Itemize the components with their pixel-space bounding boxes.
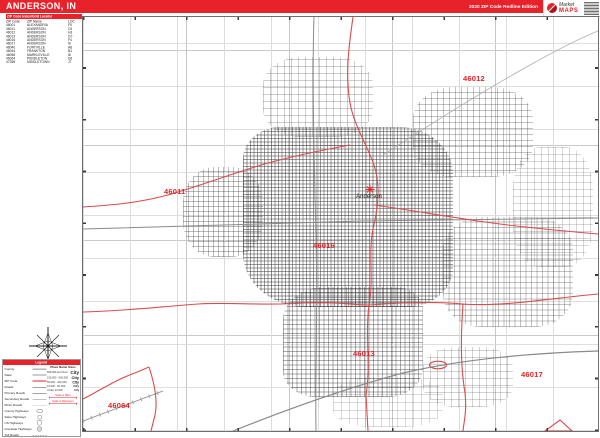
scale-bar-line <box>49 397 77 398</box>
legend-sample-line-gray <box>33 399 47 400</box>
legend-items: CountyStateZIP CodeRoadsPrimary RoadsSec… <box>3 365 47 437</box>
loc-cell: J7 <box>68 61 80 65</box>
legend-sample-line-red <box>33 381 47 382</box>
grid-ticks-left <box>83 17 86 431</box>
place-tier: 10,000 - 50,000City <box>47 385 79 388</box>
place-tier-range: 50,000 - 100,000 <box>47 381 67 384</box>
legend-sample-line-dark <box>33 387 47 388</box>
legend-item-label: Toll Roads <box>5 433 33 437</box>
legend-tiers: 500,000 and OverCity100,000 - 500,000Cit… <box>47 370 79 392</box>
legend-item-label: Primary Roads <box>5 391 33 395</box>
urban-area <box>513 147 593 267</box>
zip-index-table: ZIP Code Index/Grid Locator ZIP Code ZIP… <box>6 14 82 110</box>
logo-text: Market MAPS <box>559 3 578 14</box>
globe-icon <box>547 3 557 13</box>
urban-area <box>333 377 443 427</box>
legend-item-label: State Highways <box>5 415 33 419</box>
legend-item-label: US Highways <box>5 421 33 425</box>
logo-name-bottom: MAPS <box>559 8 578 14</box>
urban-area <box>263 57 373 137</box>
legend-sample-box <box>32 381 47 382</box>
legend-sample-line-thick <box>33 368 47 370</box>
zip-code-label: 46013 <box>353 349 375 358</box>
legend-header-text: Legend <box>36 361 48 365</box>
page-title: ANDERSON, IN <box>6 0 76 13</box>
name-cell: MIDDLETOWN <box>27 61 68 65</box>
place-tier-sample: City <box>74 389 79 392</box>
legend-sample-line-med <box>33 375 47 376</box>
legend-body: CountyStateZIP CodeRoadsPrimary RoadsSec… <box>3 365 81 437</box>
legend-sample-badge-oval <box>36 409 43 413</box>
edition-label: 2020 ZIP Code Redline Edition <box>469 4 538 9</box>
map-canvas: Anderson 460124601146016460134601746064 <box>82 16 599 432</box>
legend-scales: Scale in MilesScale in Kilometers <box>47 394 79 404</box>
legend-item: Toll Roads <box>5 432 48 437</box>
zip-table-row: 47356MIDDLETOWNJ7 <box>6 61 82 65</box>
legend-item-label: Roads <box>5 385 33 389</box>
legend-sample-box <box>32 415 47 420</box>
logo-fineprint-box <box>584 2 599 15</box>
place-tier: 50,000 - 100,000City <box>47 381 79 385</box>
grid-ticks-right <box>595 17 598 431</box>
legend-item-label: Interstate Highways <box>5 427 33 431</box>
publisher-logo: Market MAPS <box>543 0 600 17</box>
scale-bar: Scale in Miles <box>47 394 79 398</box>
place-tier-sample: City <box>73 385 79 388</box>
legend-sample-badge-circle <box>37 415 42 420</box>
legend-sample-line-toll <box>33 435 47 436</box>
place-tier-range: 100,000 - 500,000 <box>47 376 68 379</box>
legend-sample-box <box>32 405 47 406</box>
legend-item-label: ZIP Code <box>5 379 33 383</box>
legend-item-label: State <box>5 373 33 377</box>
legend-sample-box <box>32 427 47 432</box>
legend-item-label: Minor Roads <box>5 403 33 407</box>
legend-sample-badge-interstate <box>37 427 42 432</box>
urban-area <box>413 87 533 177</box>
zip-code-label: 46012 <box>463 74 485 83</box>
zip-code-label: 46011 <box>164 187 185 196</box>
city-label: Anderson <box>344 194 394 200</box>
place-tier: 500,000 and OverCity <box>47 370 79 375</box>
zip-code-label: 46016 <box>313 241 335 250</box>
legend-sample-line-light <box>33 405 47 406</box>
legend-right-column: Place Name Sizes 500,000 and OverCity100… <box>47 365 80 437</box>
zip-table-header-text: ZIP Code Index/Grid Locator <box>6 15 52 19</box>
place-tier-range: 500,000 and Over <box>47 371 68 374</box>
urban-area <box>183 167 263 257</box>
legend-item-label: Secondary Roads <box>5 397 33 401</box>
scale-bar-line <box>49 403 77 404</box>
place-tier-range: 10,000 - 50,000 <box>47 385 65 388</box>
place-tier-sample: City <box>70 370 79 375</box>
grid-ticks-top <box>83 17 598 20</box>
title-bar: ANDERSON, IN 2020 ZIP Code Redline Editi… <box>0 0 600 13</box>
zip-cell: 47356 <box>6 61 27 65</box>
legend-sample-line-dark <box>33 393 47 394</box>
edition-wrap: 2020 ZIP Code Redline Edition <box>423 0 538 13</box>
legend-sample-box <box>32 409 47 413</box>
place-tier: Under 10,000City <box>47 389 79 392</box>
legend-sample-box <box>32 387 47 388</box>
legend-sample-box <box>32 375 47 376</box>
legend-item-label: County Highways <box>5 409 33 413</box>
legend-sample-box <box>32 393 47 394</box>
place-tier: 100,000 - 500,000City <box>47 376 79 381</box>
legend-sample-box <box>32 421 47 426</box>
legend-item-label: County <box>5 367 33 371</box>
scale-bar: Scale in Kilometers <box>47 400 79 404</box>
place-names-header: Place Name Sizes <box>47 366 79 369</box>
legend-sample-badge-shield <box>37 421 42 426</box>
grid-ticks-bottom <box>83 428 598 431</box>
legend-sample-box <box>32 435 47 436</box>
zip-table-body: ZIP Code ZIP Name LOC 46001ALEXANDRIAF54… <box>6 19 82 64</box>
place-tier-sample: City <box>71 376 79 381</box>
zip-code-label: 46064 <box>108 401 130 410</box>
legend-panel: Legend CountyStateZIP CodeRoadsPrimary R… <box>2 359 81 437</box>
map-page: ANDERSON, IN 2020 ZIP Code Redline Editi… <box>0 0 600 438</box>
place-tier-range: Under 10,000 <box>47 389 63 392</box>
zip-code-label: 46017 <box>521 370 543 379</box>
legend-sample-box <box>32 368 47 370</box>
legend-sample-box <box>32 399 47 400</box>
place-tier-sample: City <box>72 381 79 385</box>
